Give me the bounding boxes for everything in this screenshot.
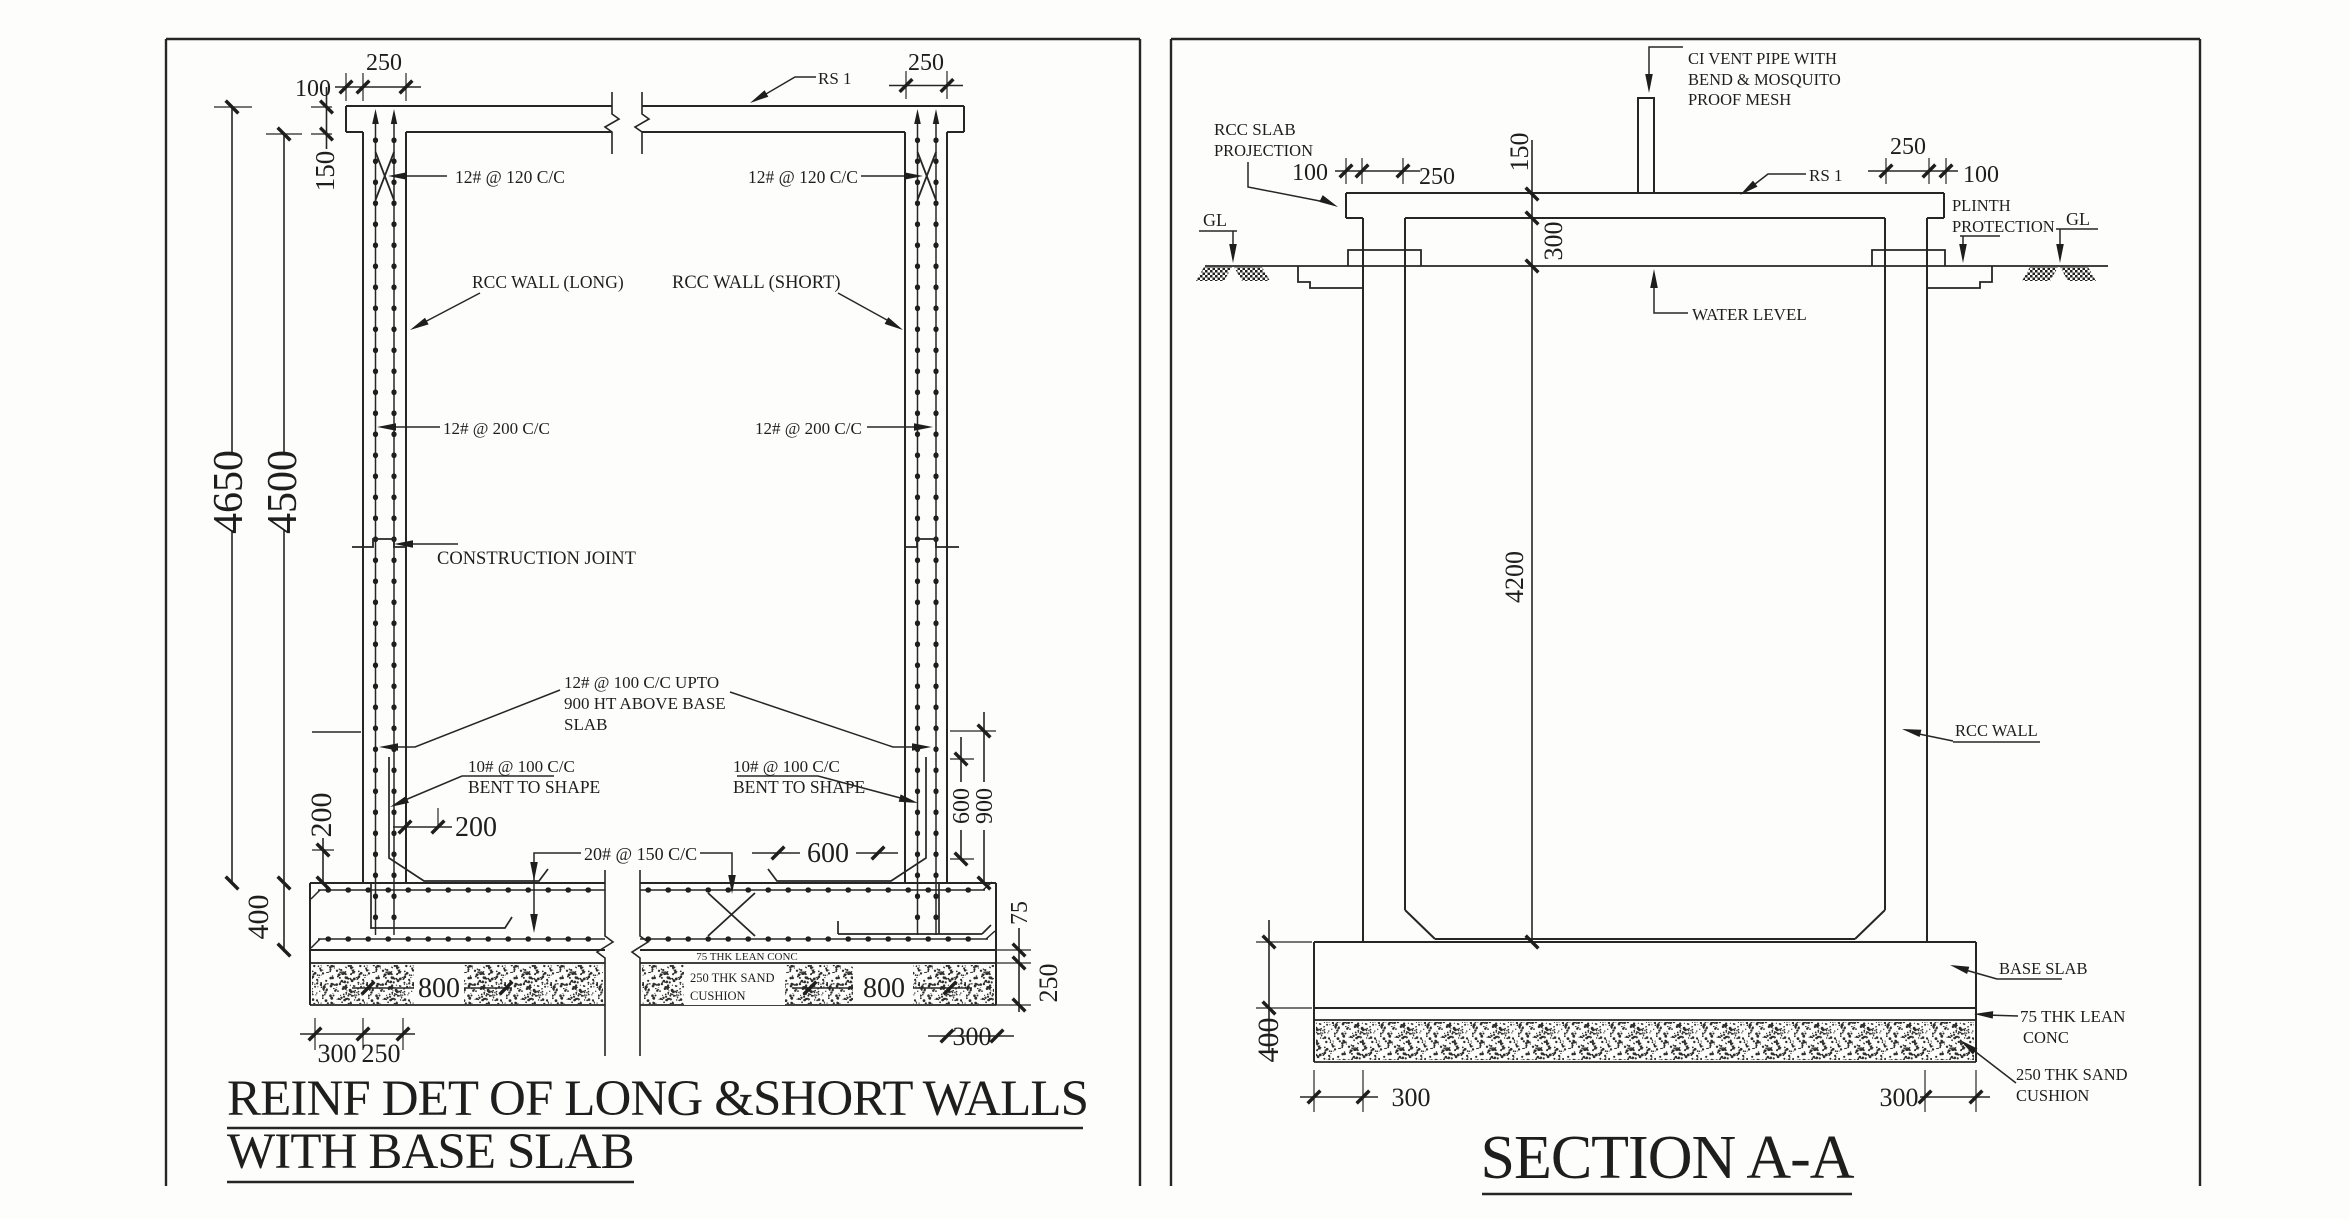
svg-text:RCC WALL (LONG): RCC WALL (LONG) xyxy=(472,272,624,292)
svg-text:400: 400 xyxy=(1252,1018,1285,1063)
svg-text:300: 300 xyxy=(953,1022,992,1051)
svg-text:200: 200 xyxy=(455,812,497,843)
svg-text:250: 250 xyxy=(362,1039,401,1068)
svg-text:CUSHION: CUSHION xyxy=(2016,1086,2089,1105)
svg-text:4200: 4200 xyxy=(1500,551,1529,603)
svg-text:75: 75 xyxy=(1007,901,1033,925)
svg-text:100: 100 xyxy=(295,76,331,102)
svg-text:GL: GL xyxy=(2066,209,2090,229)
svg-text:PROTECTION: PROTECTION xyxy=(1952,217,2055,236)
svg-text:100: 100 xyxy=(1963,162,1999,188)
svg-text:4650: 4650 xyxy=(206,450,252,534)
svg-text:CONC: CONC xyxy=(2023,1028,2069,1047)
svg-text:10# @ 100 C/C: 10# @ 100 C/C xyxy=(468,757,575,776)
svg-text:CI VENT PIPE WITH: CI VENT PIPE WITH xyxy=(1688,49,1837,68)
svg-text:300: 300 xyxy=(1539,222,1568,261)
svg-text:PROOF MESH: PROOF MESH xyxy=(1688,90,1791,109)
svg-text:250: 250 xyxy=(908,50,944,76)
svg-text:RCC SLAB: RCC SLAB xyxy=(1214,120,1296,139)
svg-text:200: 200 xyxy=(305,793,338,838)
svg-text:150: 150 xyxy=(1505,133,1534,172)
svg-text:CUSHION: CUSHION xyxy=(690,989,746,1003)
svg-text:600: 600 xyxy=(807,838,849,869)
svg-text:PLINTH: PLINTH xyxy=(1952,196,2011,215)
svg-text:250: 250 xyxy=(1419,164,1455,190)
svg-text:900 HT ABOVE BASE: 900 HT ABOVE BASE xyxy=(564,694,726,713)
svg-text:250: 250 xyxy=(1034,964,1063,1003)
svg-text:RCC WALL (SHORT): RCC WALL (SHORT) xyxy=(672,273,840,293)
svg-text:SECTION A-A: SECTION A-A xyxy=(1480,1124,1854,1192)
svg-text:BENT TO SHAPE: BENT TO SHAPE xyxy=(733,777,865,797)
svg-text:12# @ 120 C/C: 12# @ 120 C/C xyxy=(455,167,565,187)
svg-text:BASE SLAB: BASE SLAB xyxy=(1999,959,2087,978)
svg-text:20# @ 150 C/C: 20# @ 150 C/C xyxy=(584,844,697,864)
svg-text:RS 1: RS 1 xyxy=(818,69,852,88)
svg-text:REINF DET OF LONG &SHORT WALLS: REINF DET OF LONG &SHORT WALLS xyxy=(227,1071,1088,1127)
svg-text:4500: 4500 xyxy=(260,450,306,534)
svg-text:800: 800 xyxy=(418,973,460,1004)
svg-text:BENT TO SHAPE: BENT TO SHAPE xyxy=(468,777,600,797)
svg-text:75 THK LEAN: 75 THK LEAN xyxy=(2020,1007,2125,1026)
svg-text:300: 300 xyxy=(1392,1083,1431,1112)
svg-text:10# @ 100 C/C: 10# @ 100 C/C xyxy=(733,757,840,776)
svg-text:250: 250 xyxy=(1890,134,1926,160)
svg-text:12# @ 200 C/C: 12# @ 200 C/C xyxy=(443,419,550,438)
svg-text:150: 150 xyxy=(310,151,340,192)
svg-text:75 THK LEAN CONC: 75 THK LEAN CONC xyxy=(696,951,798,963)
svg-text:WATER LEVEL: WATER LEVEL xyxy=(1692,305,1807,324)
svg-text:800: 800 xyxy=(863,973,905,1004)
svg-text:100: 100 xyxy=(1292,160,1328,186)
svg-text:GL: GL xyxy=(1203,210,1227,230)
svg-text:PROJECTION: PROJECTION xyxy=(1214,141,1313,160)
svg-text:12# @ 200 C/C: 12# @ 200 C/C xyxy=(755,419,862,438)
svg-text:300: 300 xyxy=(1880,1083,1919,1112)
svg-text:SLAB: SLAB xyxy=(564,715,607,734)
svg-text:RCC WALL: RCC WALL xyxy=(1955,721,2038,740)
svg-text:BEND & MOSQUITO: BEND & MOSQUITO xyxy=(1688,70,1841,89)
svg-text:250 THK SAND: 250 THK SAND xyxy=(690,971,775,985)
svg-text:WITH BASE SLAB: WITH BASE SLAB xyxy=(227,1124,634,1180)
svg-text:12# @ 100 C/C UPTO: 12# @ 100 C/C UPTO xyxy=(564,673,719,692)
svg-text:300: 300 xyxy=(318,1039,357,1068)
svg-text:250: 250 xyxy=(366,50,402,76)
svg-text:900: 900 xyxy=(972,788,998,824)
svg-text:CONSTRUCTION JOINT: CONSTRUCTION JOINT xyxy=(437,549,636,569)
svg-text:400: 400 xyxy=(242,895,275,940)
svg-text:RS 1: RS 1 xyxy=(1809,166,1843,185)
svg-text:250 THK SAND: 250 THK SAND xyxy=(2016,1065,2128,1084)
svg-text:12# @ 120 C/C: 12# @ 120 C/C xyxy=(748,167,858,187)
